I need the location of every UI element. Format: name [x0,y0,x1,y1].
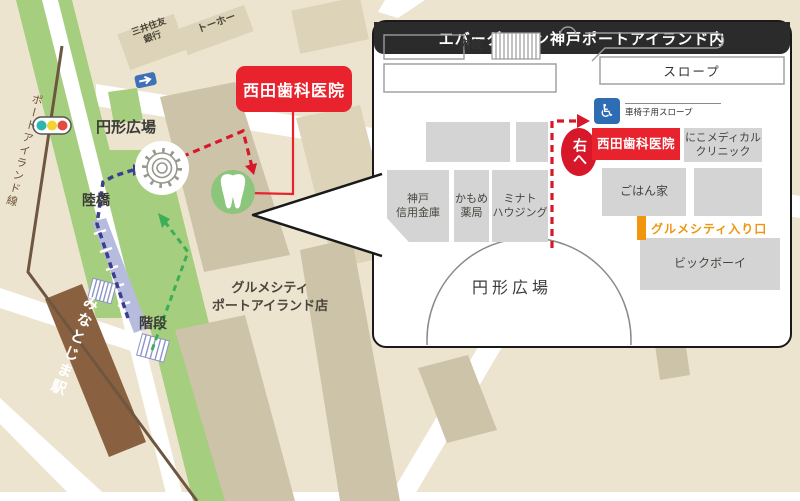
inset-detail-map: 階段 スロープ ♿ 車椅子用スロープ 右へ 神戸 信用金庫 かもめ 薬局 ミナト… [372,20,792,348]
stairs-label: 階段 [139,315,167,332]
overpass-label: 陸橋 [82,192,111,209]
inset-plaza-label: 円形広場 [472,274,552,298]
wheelchair-slope-label: 車椅子用スロープ [625,103,721,118]
inset-route-red-arrow-icon [577,114,590,128]
inset-building-pharmacy: かもめ 薬局 [454,170,489,242]
gourmet-entrance-marker [637,216,646,240]
inset-building-gohanya: ごはん家 [602,168,686,216]
inset-building [694,168,762,216]
clinic-name-callout: 西田歯科医院 [236,66,352,112]
access-map: 円形広場 陸橋 階段 グルメシティ ポートアイランド店 三井住友 銀行 トーホー… [0,0,800,501]
inset-clinic-building: 西田歯科医院 [592,128,680,160]
wheelchair-icon: ♿ [594,98,620,124]
gourmet-entrance-label: グルメシティ入り口 [651,220,767,237]
gourmet-city-label-line2: ポートアイランド店 [212,298,328,314]
callout-wedge [240,160,386,270]
inset-building-bigboy: ビックボーイ [640,238,780,290]
inset-building [426,122,510,162]
plaza-monument-icon [135,141,189,195]
inset-building [516,122,548,162]
gourmet-city-label-line1: グルメシティ [231,280,308,296]
slope-label: スロープ [600,57,784,84]
inset-building-housing: ミナト ハウジング [492,170,548,242]
plaza-label: 円形広場 [96,118,156,136]
inset-stairs-label: 階段 [460,36,482,52]
inset-building-niko-clinic: にこメディカル クリニック [684,128,762,162]
inset-stairs-icon [492,33,540,59]
